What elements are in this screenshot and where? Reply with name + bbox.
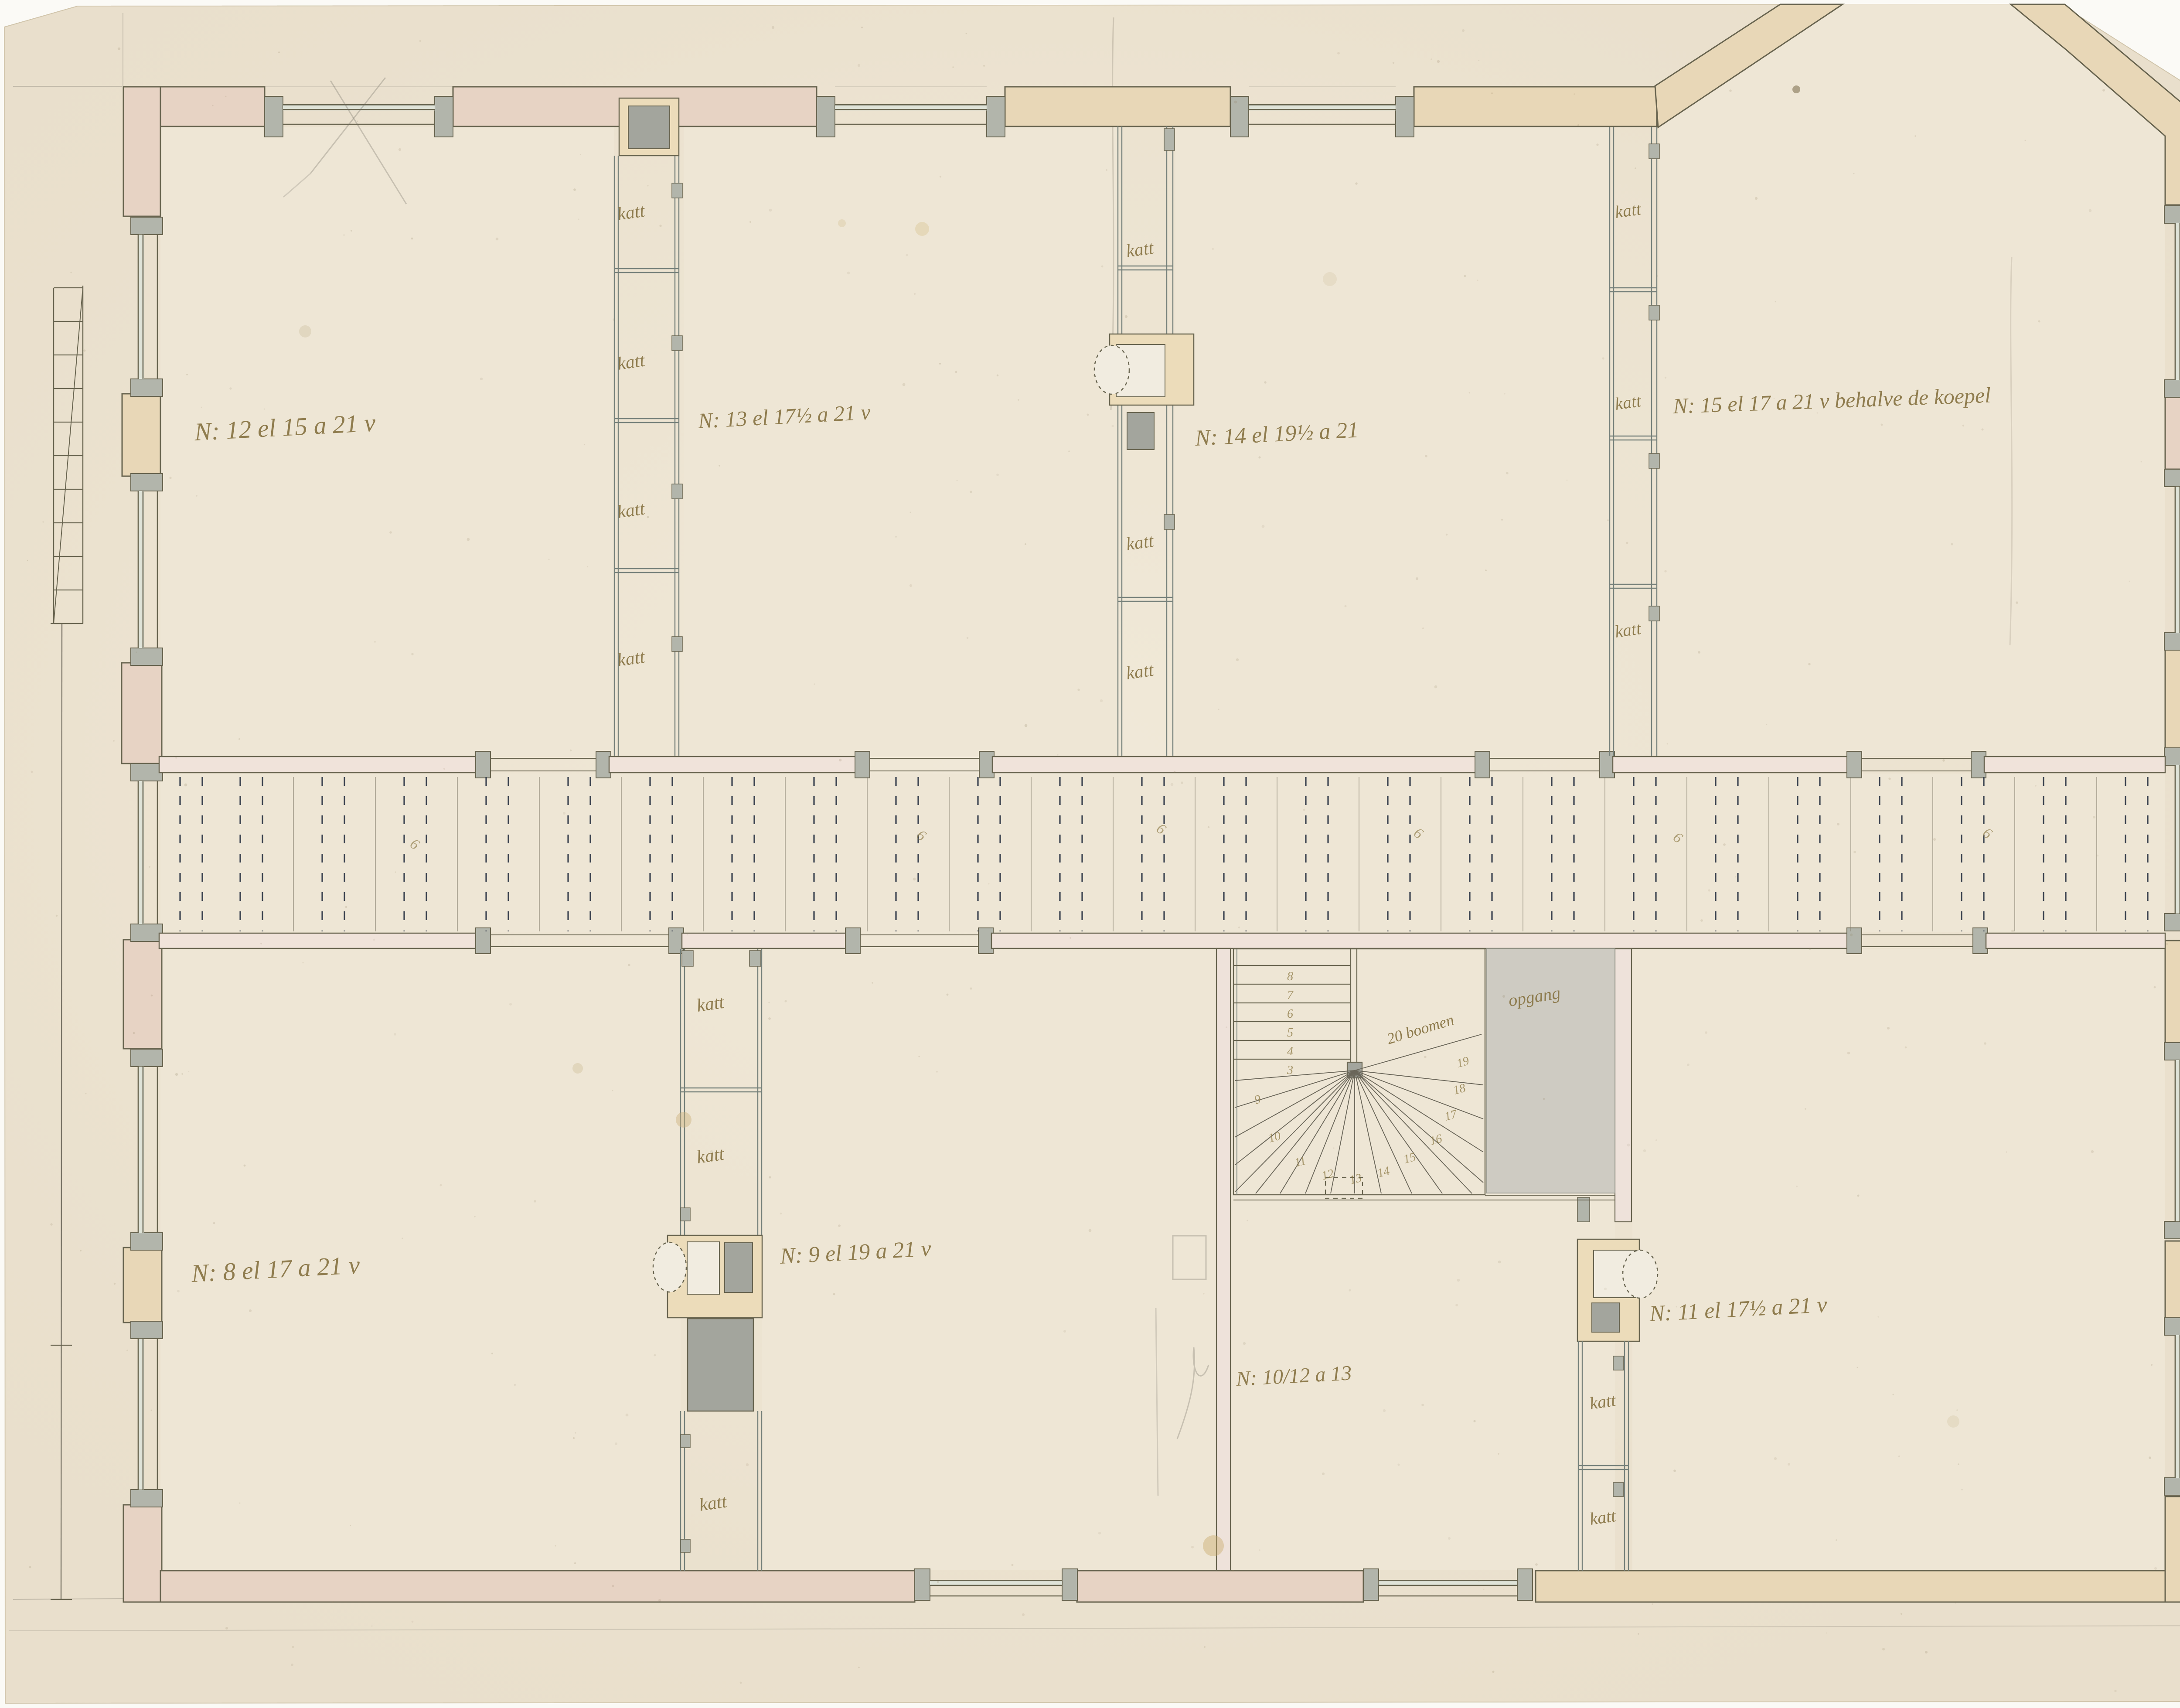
svg-text:katt: katt — [1614, 391, 1643, 414]
svg-text:5: 5 — [1287, 1026, 1293, 1040]
svg-text:6: 6 — [1287, 1007, 1293, 1021]
svg-text:katt: katt — [616, 201, 647, 225]
svg-text:katt: katt — [616, 498, 647, 522]
svg-text:7: 7 — [1287, 989, 1294, 1002]
svg-text:3: 3 — [1287, 1064, 1293, 1077]
svg-text:katt: katt — [695, 992, 726, 1016]
svg-text:katt: katt — [1125, 238, 1155, 262]
svg-text:katt: katt — [616, 647, 647, 671]
svg-text:katt: katt — [616, 350, 647, 374]
svg-text:katt: katt — [1588, 1390, 1618, 1413]
svg-text:4: 4 — [1287, 1045, 1293, 1058]
svg-text:katt: katt — [1588, 1506, 1618, 1529]
svg-text:katt: katt — [1614, 199, 1643, 222]
svg-text:katt: katt — [1125, 660, 1155, 684]
svg-text:katt: katt — [1614, 618, 1643, 641]
svg-text:katt: katt — [695, 1144, 726, 1168]
svg-text:katt: katt — [1125, 531, 1155, 555]
svg-text:8: 8 — [1287, 970, 1293, 983]
svg-text:katt: katt — [698, 1491, 729, 1515]
